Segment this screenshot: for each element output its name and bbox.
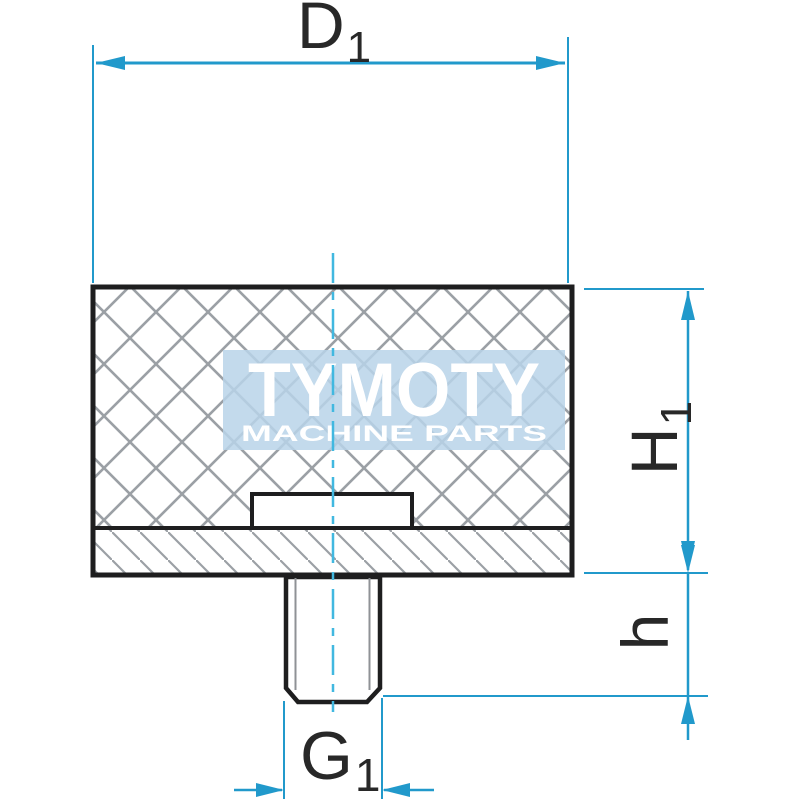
drawing-canvas: TYMOTY MACHINE PARTS bbox=[0, 0, 800, 800]
label-h1-base: H bbox=[617, 427, 691, 475]
label-d1-base: D bbox=[297, 0, 345, 62]
arrowhead-left bbox=[96, 56, 125, 70]
arrowhead-left bbox=[382, 783, 410, 797]
arrowhead-right bbox=[256, 783, 284, 797]
label-h1-sub: 1 bbox=[652, 401, 701, 425]
arrowhead-down bbox=[681, 545, 695, 573]
label-d1-sub: 1 bbox=[347, 23, 371, 72]
label-g1: G1 bbox=[300, 718, 381, 800]
label-g1-sub: 1 bbox=[355, 749, 381, 800]
arrowhead-right bbox=[536, 56, 565, 70]
technical-drawing: TYMOTY MACHINE PARTS bbox=[0, 0, 800, 800]
watermark-tagline: MACHINE PARTS bbox=[241, 421, 547, 446]
arrowhead-up bbox=[681, 291, 695, 320]
label-h: h bbox=[608, 614, 682, 651]
watermark: TYMOTY MACHINE PARTS bbox=[223, 348, 565, 450]
label-d1: D1 bbox=[297, 0, 371, 72]
arrowhead-up bbox=[681, 696, 695, 724]
dimension-d1 bbox=[93, 37, 568, 283]
label-h1: H1 bbox=[617, 401, 701, 475]
label-g1-base: G bbox=[300, 718, 353, 794]
